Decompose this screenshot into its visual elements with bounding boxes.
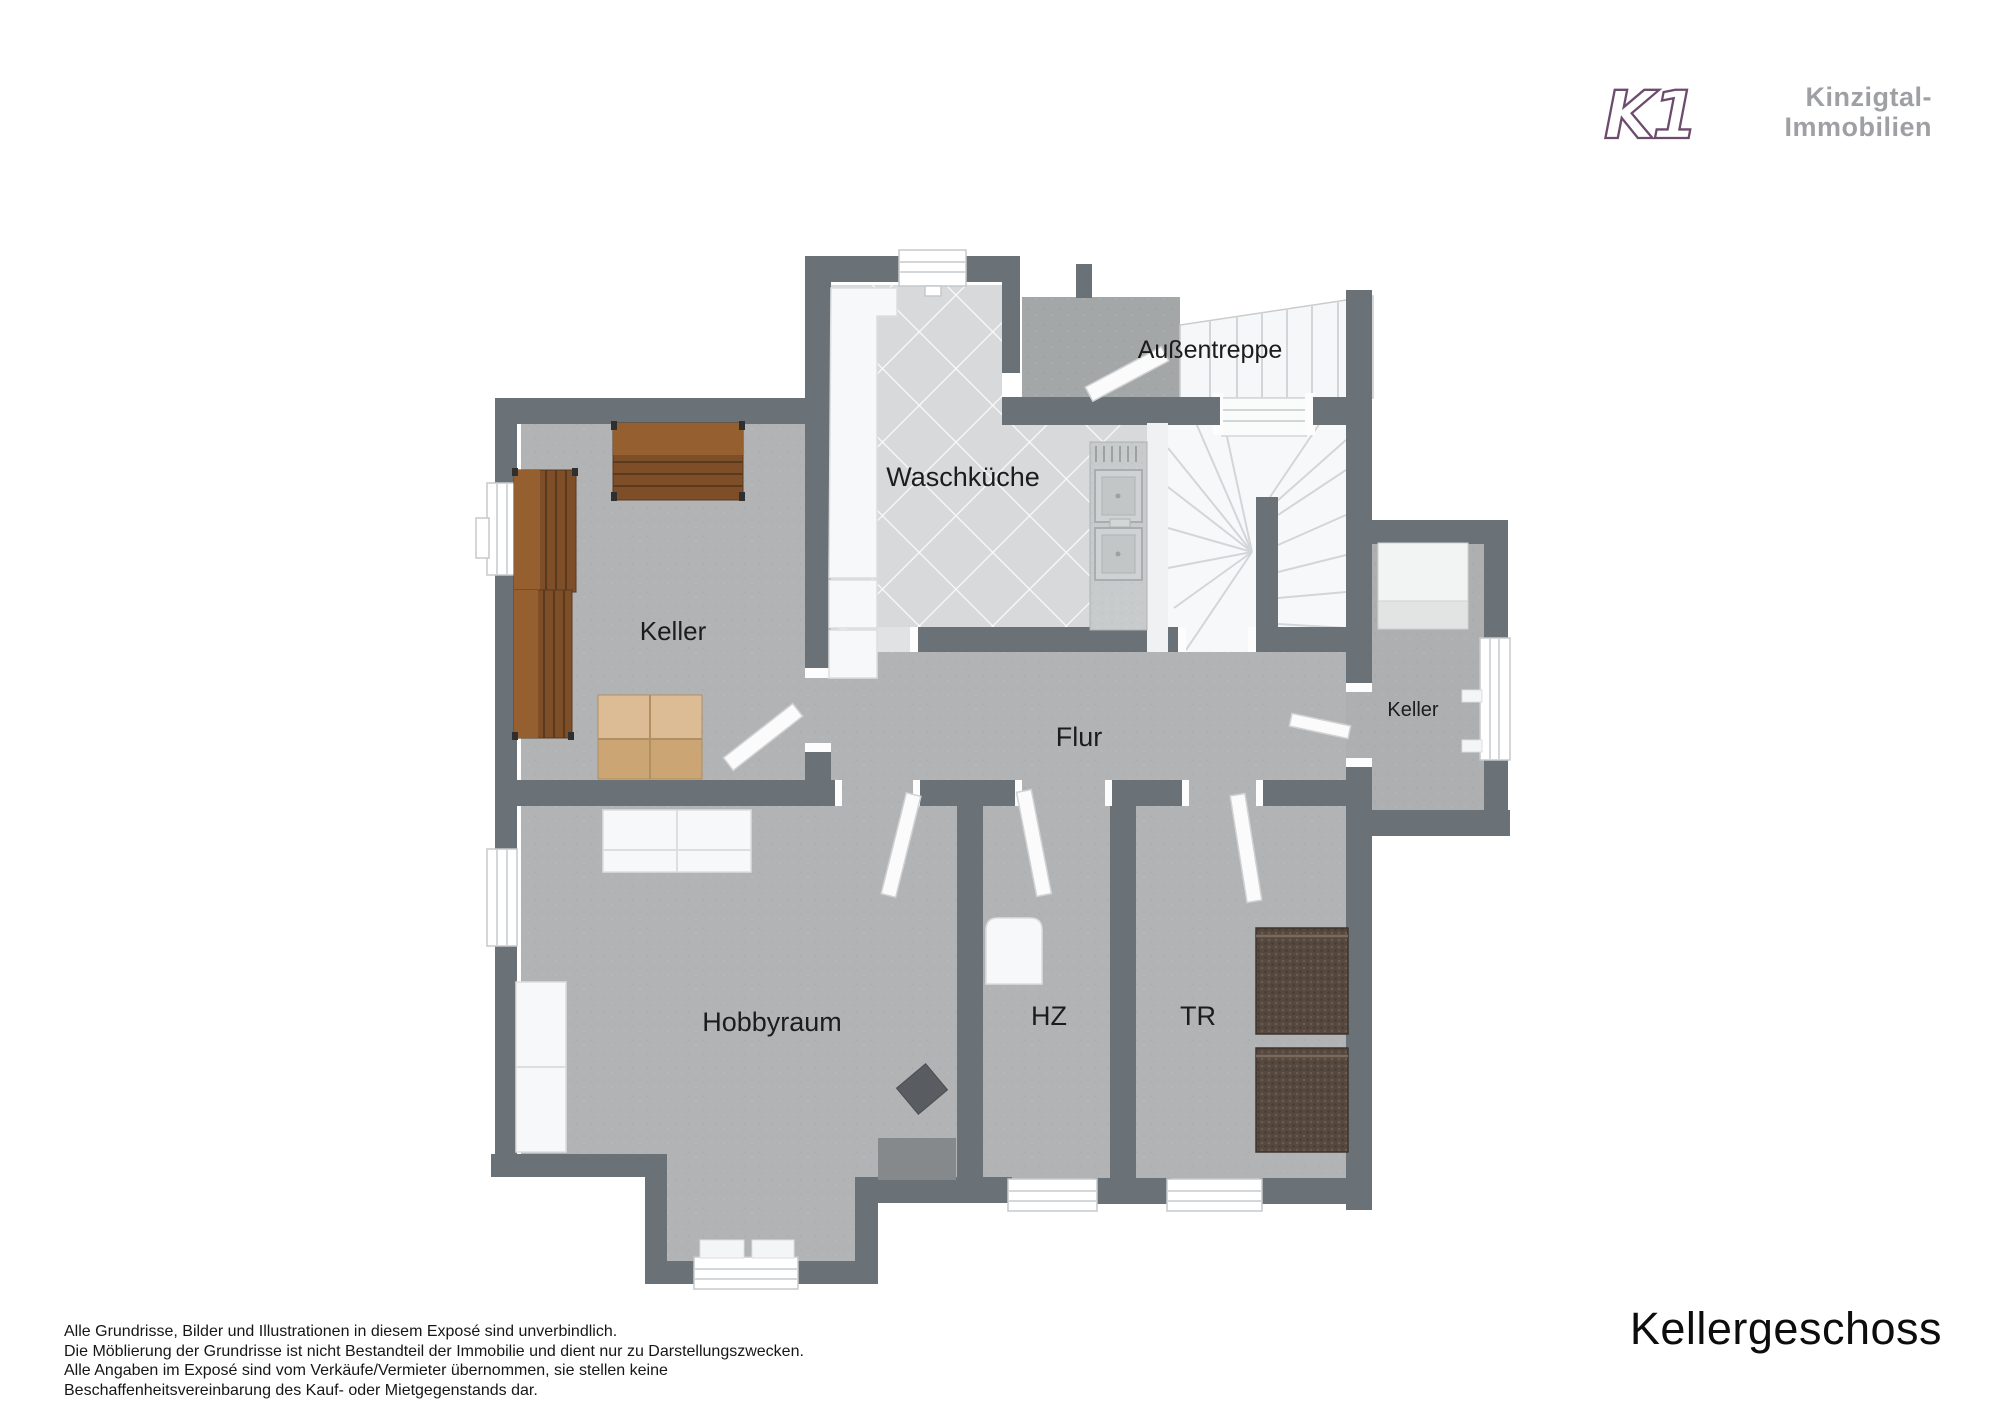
wall-segment <box>1256 780 1348 806</box>
label-keller: Keller <box>640 616 707 646</box>
door-post <box>835 780 842 806</box>
wall-segment <box>491 1154 667 1177</box>
window-hobbyraum-left <box>487 849 517 946</box>
label-tr: TR <box>1180 1001 1216 1031</box>
wall-segment <box>1002 256 1020 373</box>
room-hz-floor <box>983 806 1110 1180</box>
window-hz-bottom <box>1008 1179 1097 1211</box>
freezer-box <box>1378 543 1468 629</box>
disclaimer-line: Beschaffenheitsvereinbarung des Kauf- od… <box>64 1381 804 1401</box>
wall-segment <box>1256 497 1278 652</box>
wall-segment <box>1076 264 1092 298</box>
storage-box <box>1256 928 1348 1034</box>
door-post <box>1182 780 1189 806</box>
sink-counter <box>1090 442 1147 630</box>
window-keller-left <box>476 483 517 575</box>
door-post <box>805 668 831 678</box>
stair-first-step <box>1222 398 1306 436</box>
label-hz: HZ <box>1031 1001 1067 1031</box>
wall-segment <box>1260 1178 1348 1204</box>
window-tr-bottom <box>1167 1179 1262 1211</box>
doorway-floor <box>805 678 831 743</box>
wall-segment <box>495 780 835 806</box>
storage-box <box>1256 1048 1348 1152</box>
sideboard <box>603 810 751 872</box>
wall-segment <box>855 1177 1012 1203</box>
door-post <box>910 627 918 652</box>
wall-segment <box>1484 520 1508 642</box>
wall-segment <box>1368 810 1510 836</box>
boiler <box>986 918 1042 984</box>
cabinet <box>516 982 566 1152</box>
wall-segment <box>910 627 1185 652</box>
wall-segment <box>1346 780 1372 1210</box>
label-flur: Flur <box>1056 722 1103 752</box>
wall-partition-light <box>1147 423 1168 652</box>
washing-machine <box>829 630 877 678</box>
disclaimer-line: Alle Grundrisse, Bilder und Illustration… <box>64 1322 804 1342</box>
washing-machine <box>829 580 877 628</box>
wall-segment <box>957 797 983 1187</box>
door-post <box>1256 780 1263 806</box>
wall-segment <box>645 1261 700 1284</box>
wall-segment <box>1346 290 1372 692</box>
label-keller-klein: Keller <box>1387 699 1438 721</box>
door-post <box>1346 758 1372 767</box>
door-post <box>1248 627 1256 652</box>
wall-segment <box>1002 397 1220 425</box>
floorplan-drawing: Waschküche Außentreppe Keller Flur Kelle… <box>0 0 2000 1413</box>
door-post <box>1178 627 1186 652</box>
wall-segment <box>805 256 902 282</box>
disclaimer-line: Die Möblierung der Grundrisse ist nicht … <box>64 1342 804 1362</box>
doorway-floor <box>835 780 913 806</box>
floor-mat <box>878 1138 956 1180</box>
wall-segment <box>495 944 517 1156</box>
floor-title: Kellergeschoss <box>1630 1303 1942 1355</box>
room-flur-floor <box>831 652 1346 780</box>
wall-segment <box>1110 780 1136 1187</box>
floorplan-page: K1 Kinzigtal- Immobilien <box>0 0 2000 1413</box>
label-waschkueche: Waschküche <box>886 462 1040 492</box>
wall-segment <box>495 398 805 424</box>
disclaimer-text: Alle Grundrisse, Bilder und Illustration… <box>64 1322 804 1400</box>
door-post <box>1346 683 1372 692</box>
label-aussentreppe: Außentreppe <box>1138 336 1283 364</box>
label-hobbyraum: Hobbyraum <box>702 1007 842 1037</box>
cardboard-boxes <box>598 695 702 779</box>
shelf-unit <box>512 590 574 740</box>
disclaimer-line: Alle Angaben im Exposé sind vom Verkäufe… <box>64 1361 804 1381</box>
wall-segment <box>1484 758 1508 812</box>
faucet <box>1110 519 1130 527</box>
door-post <box>1105 780 1112 806</box>
shelf-unit <box>512 468 578 592</box>
wall-segment <box>1095 1178 1171 1204</box>
door-post <box>805 743 831 752</box>
shelf-unit <box>611 421 745 501</box>
wall-segment <box>495 806 517 851</box>
wall-segment <box>805 256 831 678</box>
